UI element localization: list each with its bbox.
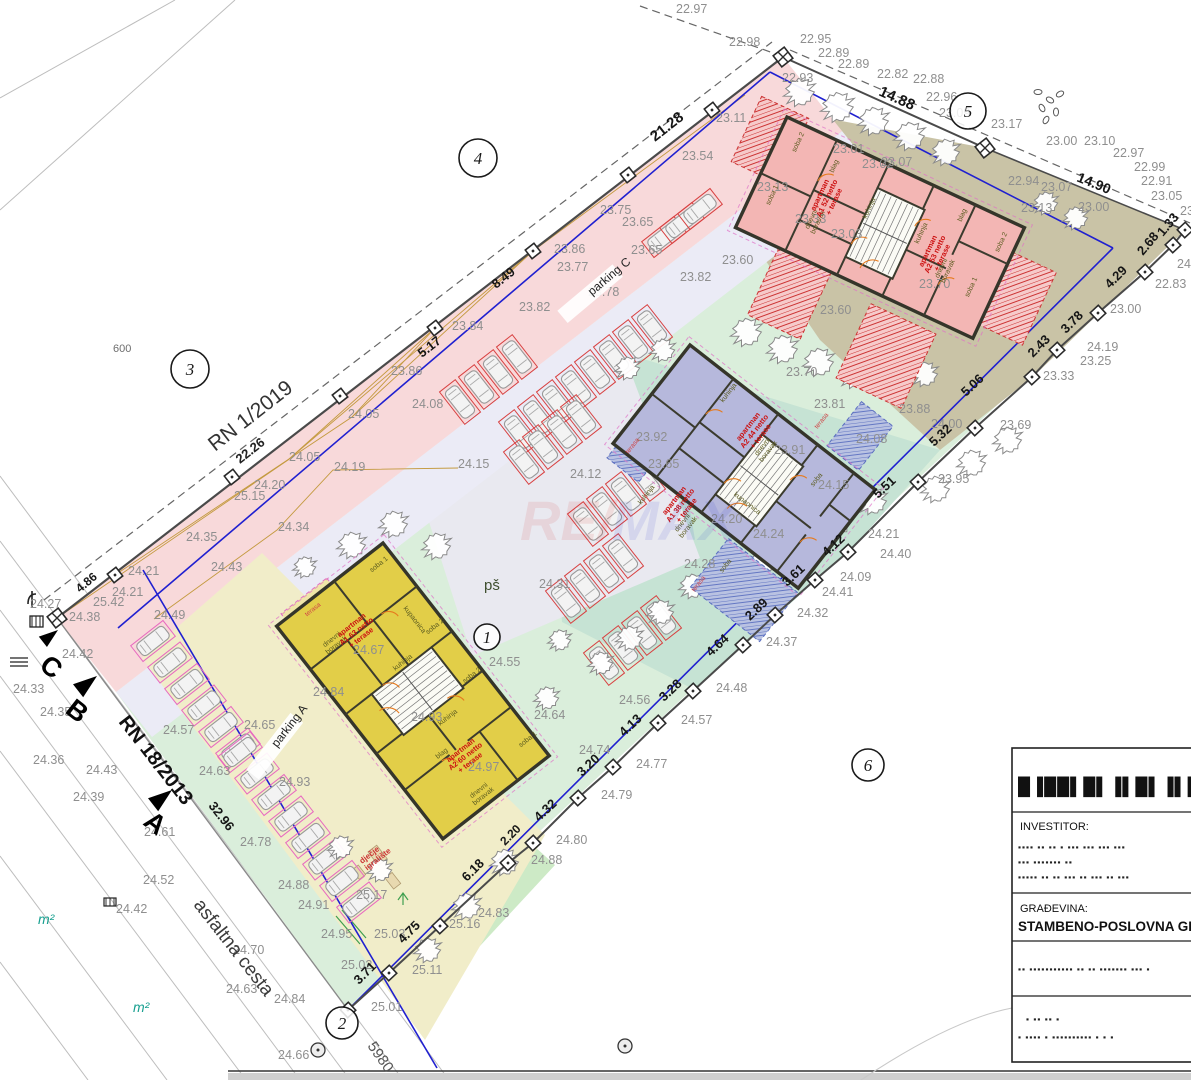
elevation-label: 24.43 [86, 763, 117, 777]
site-plan-svg: 22.9722.9822.9522.9322.8922.8922.8222.88… [0, 0, 1191, 1080]
elevation-label: 23.33 [1043, 369, 1074, 383]
elevation-label: 23.70 [786, 365, 817, 379]
elevation-label: 24.33 [13, 682, 44, 696]
elevation-label: 23.11 [716, 111, 746, 125]
investor-line: ▪▪▪▪▪ ▪▪ ▪▪ ▪▪▪ ▪▪ ▪▪▪ ▪▪ ▪▪▪ [1018, 872, 1130, 882]
elevation-label: 24.40 [880, 547, 911, 561]
elevation-label: 24.21 [868, 527, 899, 541]
elevation-label: 24.24 [753, 527, 784, 541]
elevation-label: 22.93 [782, 71, 813, 85]
elevation-label: 23.05 [1151, 189, 1182, 203]
elevation-label: 25.17 [356, 888, 387, 902]
elevation-label: 24.05 [289, 450, 320, 464]
elevation-label: 23.00 [1110, 302, 1141, 316]
elevation-label: 23.01 [833, 142, 864, 156]
elevation-label: 23.69 [1000, 418, 1031, 432]
elevation-label: 24.57 [681, 713, 712, 727]
watermark-text: MAX [612, 489, 740, 552]
parcel-number: 6 [864, 756, 873, 775]
elevation-label: 24.00 [1177, 257, 1191, 271]
elevation-label: 23.65 [622, 215, 653, 229]
gradevina-label: GRAĐEVINA: [1020, 903, 1088, 915]
elevation-label: 24.55 [489, 655, 520, 669]
elevation-label: 24.37 [766, 635, 797, 649]
elevation-label: 23.65 [648, 457, 679, 471]
elevation-label: 24.12 [570, 467, 601, 481]
elevation-label: 24.49 [154, 608, 185, 622]
elevation-label: 23.95 [938, 472, 969, 486]
elevation-label: 23.88 [899, 402, 930, 416]
elevation-label: 22.82 [877, 67, 908, 81]
parcel-number: 5 [964, 102, 973, 121]
rock-symbol [1042, 115, 1050, 124]
direction-arrow [39, 625, 62, 647]
culvert-symbol [10, 658, 28, 666]
elevation-label: 24.78 [240, 835, 271, 849]
parcel-number: 2 [338, 1014, 347, 1033]
elevation-label: 24.15 [458, 457, 489, 471]
elevation-label: 22.97 [1113, 146, 1144, 160]
elevation-label: 24.83 [478, 906, 509, 920]
elevation-label: 24.08 [412, 397, 443, 411]
firm-logo-text: █▐██▌█▌▐▌█▌▐▌██▌▐█ [1018, 776, 1191, 798]
rock-symbol [1054, 108, 1059, 116]
elevation-label: 23.54 [682, 149, 713, 163]
elevation-label: 24.21 [128, 564, 159, 578]
elevation-label: 23.92 [636, 430, 667, 444]
elevation-label: 23.17 [991, 117, 1022, 131]
elevation-label: 23.25 [1080, 354, 1111, 368]
elevation-label: 24.66 [278, 1048, 309, 1062]
rock-symbol [1034, 90, 1042, 95]
elevation-label: 22.91 [1141, 174, 1172, 188]
elevation-label: 24.39 [73, 790, 104, 804]
elevation-label: 24.31 [539, 577, 570, 591]
elevation-label: 24.91 [298, 898, 329, 912]
elevation-label: 23.00 [1078, 200, 1109, 214]
elevation-label: 23.81 [814, 397, 845, 411]
elevation-label: 23.60 [722, 253, 753, 267]
elevation-label: 25.42 [93, 595, 124, 609]
elevation-label: 24.65 [244, 718, 275, 732]
elevation-label: 24.36 [33, 753, 64, 767]
special-label: pš [484, 577, 500, 594]
elevation-label: 22.97 [676, 2, 707, 16]
elevation-label: 24.52 [143, 873, 174, 887]
elevation-label: 24.42 [116, 902, 147, 916]
elevation-label: 24.38 [69, 610, 100, 624]
elevation-label: 24.08 [856, 432, 887, 446]
elevation-label: 23.03 [831, 227, 862, 241]
tree [820, 93, 854, 123]
elevation-label: 22.88 [913, 72, 944, 86]
elevation-label: 23.77 [557, 260, 588, 274]
parcel-number: 3 [185, 360, 195, 379]
special-label: 5980 [364, 1039, 397, 1076]
parcel-number: 1 [483, 628, 492, 647]
elevation-label: 25.16 [449, 917, 480, 931]
contour-curve [858, 1008, 1012, 1080]
elevation-label: 24.28 [684, 557, 715, 571]
parcel-number: 4 [474, 149, 483, 168]
elevation-label: 23.10 [1084, 134, 1115, 148]
elevation-label: 22.94 [1008, 174, 1039, 188]
investor-line: ▪▪▪ ▪▪▪▪▪▪▪ ▪▪ [1018, 857, 1073, 867]
special-label: 600 [113, 343, 131, 355]
rock-symbol [1055, 90, 1064, 98]
elevation-label: 24.80 [556, 833, 587, 847]
elevation-label: 22.99 [1134, 160, 1165, 174]
elevation-label: 24.09 [840, 570, 871, 584]
elevation-label: 23.65 [631, 243, 662, 257]
elevation-label: 24.57 [163, 723, 194, 737]
elevation-label: 22.83 [1155, 277, 1186, 291]
elevation-label: 23.60 [820, 303, 851, 317]
elevation-label: 24.41 [822, 585, 853, 599]
elevation-label: 25.15 [234, 489, 265, 503]
elevation-label: 24.19 [1087, 340, 1118, 354]
watermark: RE/MAX [520, 489, 740, 552]
elevation-label: 24.19 [334, 460, 365, 474]
elevation-label: 23.13 [1021, 201, 1052, 215]
footer-line: ▪ ▪▪ ▪▪ ▪ [1026, 1014, 1060, 1024]
watermark-text: RE/ [520, 489, 619, 552]
elevation-label: 24.95 [321, 927, 352, 941]
footer-line: ▪ ▪▪▪▪ ▪ ▪▪▪▪▪▪▪▪▪▪ ▪ ▪ ▪ [1018, 1032, 1114, 1042]
elevation-label: 25.11 [412, 963, 442, 977]
elevation-label: 23.07 [1041, 180, 1072, 194]
elevation-label: 23.07 [881, 155, 912, 169]
elevation-label: 24.32 [797, 606, 828, 620]
elevation-label: 25.01 [371, 1000, 402, 1014]
elevation-label: 24.56 [619, 693, 650, 707]
rock-symbol [1045, 96, 1054, 104]
elevation-label: 24.77 [636, 757, 667, 771]
elevation-label: 24.15 [818, 478, 849, 492]
elevation-label: 23.82 [680, 270, 711, 284]
elevation-label: 24.84 [274, 992, 305, 1006]
elevation-label: 24.48 [716, 681, 747, 695]
elevation-label: 23.86 [391, 364, 422, 378]
elevation-label: 23.00 [1046, 134, 1077, 148]
elevation-label: 23.84 [452, 319, 483, 333]
elevation-label: 24.27 [30, 597, 61, 611]
elevation-label: 24.88 [278, 878, 309, 892]
elevation-label: 23.86 [554, 242, 585, 256]
elevation-label: 24.93 [279, 775, 310, 789]
elevation-label: 24.84 [313, 685, 344, 699]
special-label: m² [38, 911, 56, 927]
rock-symbol [1038, 103, 1046, 112]
title-block: █▐██▌█▌▐▌█▌▐▌██▌▐█ INVESTITOR: ▪▪▪▪ ▪▪ ▪… [858, 748, 1191, 1080]
elevation-label: 23.91 [774, 443, 805, 457]
investor-label: INVESTITOR: [1020, 821, 1089, 833]
special-label: m² [133, 999, 151, 1015]
elevation-label: 23.17 [1180, 204, 1191, 218]
elevation-label: 22.89 [838, 57, 869, 71]
elevation-label: 24.34 [278, 520, 309, 534]
elevation-label: 22.98 [729, 35, 760, 49]
project-line: ▪▪ ▪▪▪▪▪▪▪▪▪▪▪ ▪▪ ▪▪ ▪▪▪▪▪▪▪ ▪▪▪ ▪ [1018, 964, 1151, 974]
gradevina-value: STAMBENO-POSLOVNA GRAĐ [1018, 919, 1191, 934]
elevation-label: 24.43 [211, 560, 242, 574]
elevation-label: 24.88 [531, 853, 562, 867]
investor-line: ▪▪▪▪ ▪▪ ▪▪ ▪ ▪▪▪ ▪▪▪ ▪▪▪ ▪▪▪ [1018, 842, 1126, 852]
elevation-label: 24.79 [601, 788, 632, 802]
elevation-label: 22.95 [800, 32, 831, 46]
elevation-label: 24.35 [186, 530, 217, 544]
elevation-label: 24.64 [534, 708, 565, 722]
elevation-label: 23.82 [519, 300, 550, 314]
elevation-label: 24.63 [199, 764, 230, 778]
site-plan-page: { "plan": { "special_labels": [ {"t":"RN… [0, 0, 1191, 1080]
elevation-label: 24.05 [348, 407, 379, 421]
